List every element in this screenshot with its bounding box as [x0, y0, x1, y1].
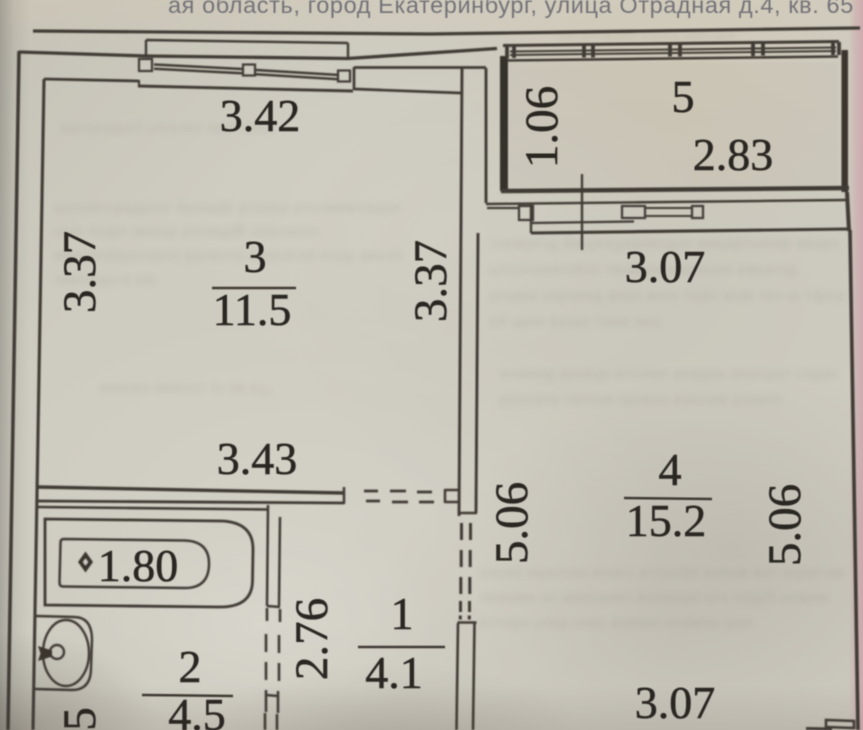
svg-text:1.06: 1.06: [516, 86, 568, 168]
svg-text:1.80: 1.80: [98, 540, 179, 591]
svg-text:2: 2: [179, 641, 202, 692]
svg-text:2.76: 2.76: [286, 598, 338, 680]
svg-text:3.07: 3.07: [625, 241, 706, 292]
svg-text:3.43: 3.43: [217, 433, 298, 484]
svg-text:1: 1: [391, 588, 414, 639]
svg-text:5: 5: [54, 707, 106, 730]
svg-text:11.5: 11.5: [213, 284, 292, 335]
svg-text:2.83: 2.83: [693, 129, 774, 180]
svg-text:5.06: 5.06: [486, 482, 538, 564]
svg-text:4: 4: [659, 444, 682, 495]
svg-text:3.37: 3.37: [405, 240, 457, 322]
svg-text:3.37: 3.37: [54, 231, 106, 313]
svg-text:3.07: 3.07: [635, 677, 716, 728]
svg-text:5: 5: [672, 71, 695, 122]
svg-text:5.06: 5.06: [759, 484, 811, 566]
svg-text:3: 3: [244, 231, 267, 282]
svg-text:4.1: 4.1: [365, 647, 423, 698]
svg-text:3.42: 3.42: [220, 90, 301, 141]
svg-text:4.5: 4.5: [168, 689, 226, 730]
svg-text:15.2: 15.2: [626, 495, 707, 546]
